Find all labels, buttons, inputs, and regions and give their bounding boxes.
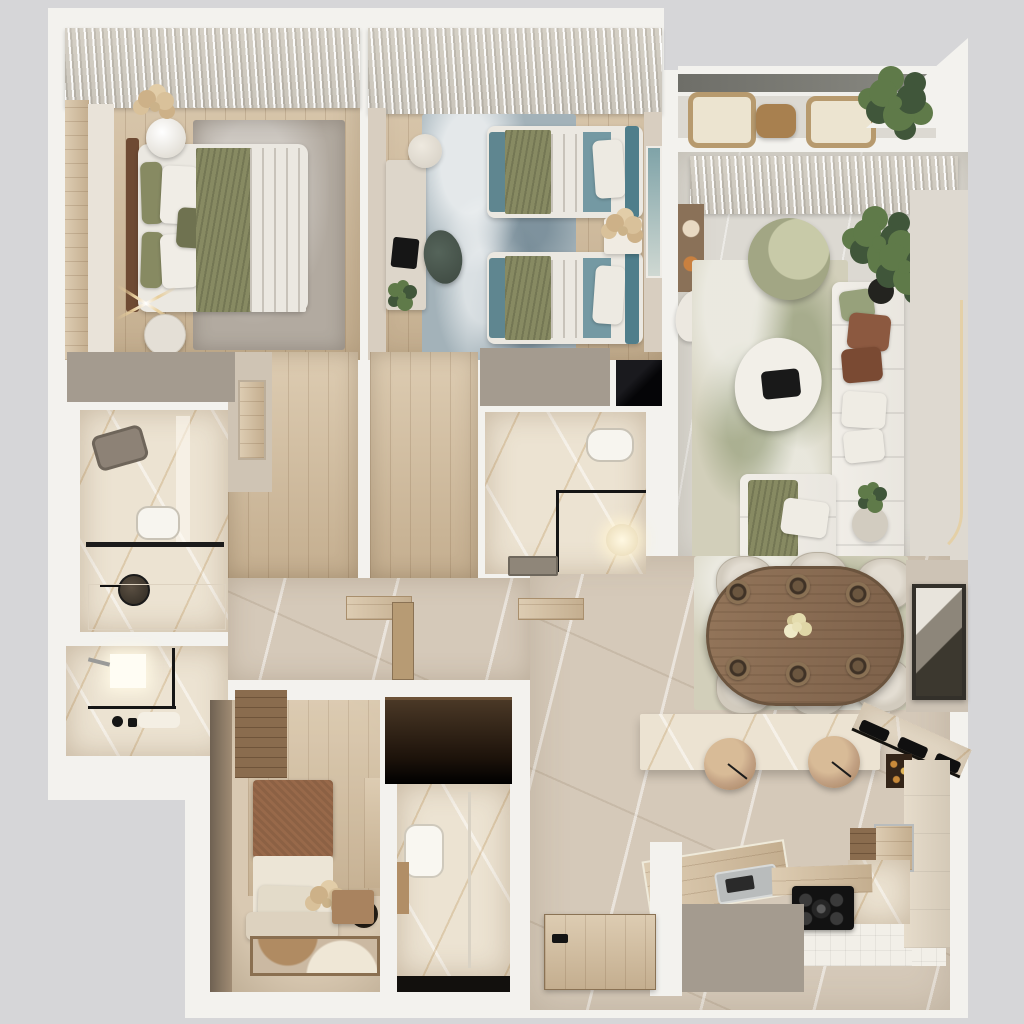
entry-mirror-panel	[616, 360, 662, 406]
bathroom4-glass	[468, 792, 471, 968]
bathroom3-glass-h	[556, 490, 646, 493]
place-setting-6	[846, 654, 870, 678]
master-wall-panel	[88, 104, 114, 354]
pendant-stem-icon	[831, 761, 851, 777]
place-setting-4	[726, 656, 750, 680]
kids-bed1-sheet	[551, 134, 583, 212]
place-setting-1	[726, 580, 750, 604]
bathroom1-toilet	[136, 506, 180, 540]
sofa-pillow-white-1	[841, 391, 887, 430]
kids-bed2-headboard	[625, 252, 639, 344]
kids-laptop	[391, 237, 420, 270]
kids-nightstand-plant	[618, 226, 628, 236]
bathroom2-floor	[66, 646, 228, 756]
bathroom2-soap-dish	[128, 718, 137, 727]
corridor-niche-shelf	[238, 380, 266, 460]
kitchen-pendant-2	[808, 736, 860, 788]
sofa-pillow-white-2	[842, 428, 885, 464]
bathroom3-toilet	[586, 428, 634, 462]
living-swivel-armchair	[748, 218, 830, 300]
kids-wall-art	[646, 146, 662, 278]
sofa-pillow-rust-2	[841, 346, 884, 383]
balcony-plant	[888, 96, 902, 110]
master-pampas-plant	[150, 102, 160, 112]
small-bedroom-slat-panel	[235, 690, 287, 778]
master-blanket	[196, 148, 252, 312]
bathroom4-door	[397, 862, 409, 914]
corridor-kids-floor	[370, 352, 478, 578]
sink-basin	[725, 875, 755, 893]
living-side-table	[852, 506, 888, 542]
wardrobe-dark	[385, 697, 512, 784]
place-setting-5	[786, 662, 810, 686]
kids-curtain	[368, 28, 662, 114]
sofa-pillow-white-3	[780, 497, 831, 539]
bathroom1-shower-tray	[88, 584, 226, 630]
balcony-sky-notch	[664, 8, 968, 70]
pendant-stem-icon	[727, 763, 747, 779]
small-bedroom-rug	[250, 936, 380, 976]
living-plant-table	[868, 278, 894, 304]
hallway-marble-floor	[228, 578, 530, 680]
entry-door-handle	[552, 934, 568, 943]
dining-centerpiece-flowers	[792, 622, 802, 632]
place-setting-2	[786, 574, 810, 598]
balcony-table	[756, 104, 796, 138]
wall-block-center	[480, 348, 610, 406]
kids-bed1-headboard	[625, 126, 639, 218]
bathroom3-sink	[508, 556, 558, 576]
bathroom4-floor	[397, 784, 510, 976]
master-side-table	[144, 314, 186, 356]
kids-nightstand	[604, 218, 642, 254]
living-plant-big-1	[872, 236, 886, 250]
master-curtain	[65, 28, 360, 108]
dining-wall-art	[912, 584, 966, 700]
floor-plan-render	[0, 0, 1024, 1024]
kids-desk	[386, 160, 426, 310]
place-setting-3	[846, 582, 870, 606]
small-bedroom-cabinet	[364, 778, 380, 888]
small-bedroom-nightstand	[332, 890, 374, 924]
small-bed-headboard	[253, 780, 333, 858]
living-led-cove	[916, 300, 963, 559]
balcony-chair-1	[688, 92, 756, 148]
balcony-edge	[678, 66, 936, 74]
kids-pouf	[408, 134, 442, 168]
sofa-pillow-rust-1	[846, 312, 892, 352]
master-plant-pot	[146, 118, 186, 158]
kids-bed1-blanket	[505, 130, 551, 214]
kitchen-base-wall	[678, 904, 804, 992]
small-bedroom-wall-left	[210, 700, 232, 992]
kids-bed2-blanket	[505, 256, 551, 340]
kids-bed2-sheet	[551, 260, 583, 338]
kids-wall-left	[368, 108, 386, 360]
kitchen-pendant-1	[704, 738, 756, 790]
entry-door-leaf	[544, 914, 656, 990]
bathroom4-toilet	[404, 824, 444, 878]
wall-block-left	[67, 352, 235, 402]
bathroom4-vanity-shadow	[397, 976, 510, 992]
threshold-step-2	[518, 598, 584, 620]
balcony-ledge-dark	[678, 74, 936, 92]
living-side-plant	[868, 494, 876, 502]
bathroom2-basin-dark	[112, 716, 123, 727]
bathroom3-sconce-light	[606, 524, 638, 556]
bathroom2-glass-v	[172, 648, 175, 709]
balcony-chair-2	[806, 96, 876, 148]
bathroom2-glass-h	[88, 706, 176, 709]
bathroom1-vanity-bar	[86, 542, 224, 547]
small-bedroom-pampas	[322, 898, 332, 908]
living-coffee-table-tray	[761, 368, 802, 400]
hall-door-leaf	[392, 602, 414, 680]
kids-desk-plant	[398, 292, 406, 300]
bathroom2-bench	[138, 712, 180, 728]
kids-bed2-pillow	[592, 265, 626, 325]
bathroom2-window-light	[110, 654, 146, 688]
kids-bed1-pillow	[592, 139, 626, 199]
master-duvet	[250, 148, 306, 312]
master-wood-wall	[65, 100, 89, 360]
